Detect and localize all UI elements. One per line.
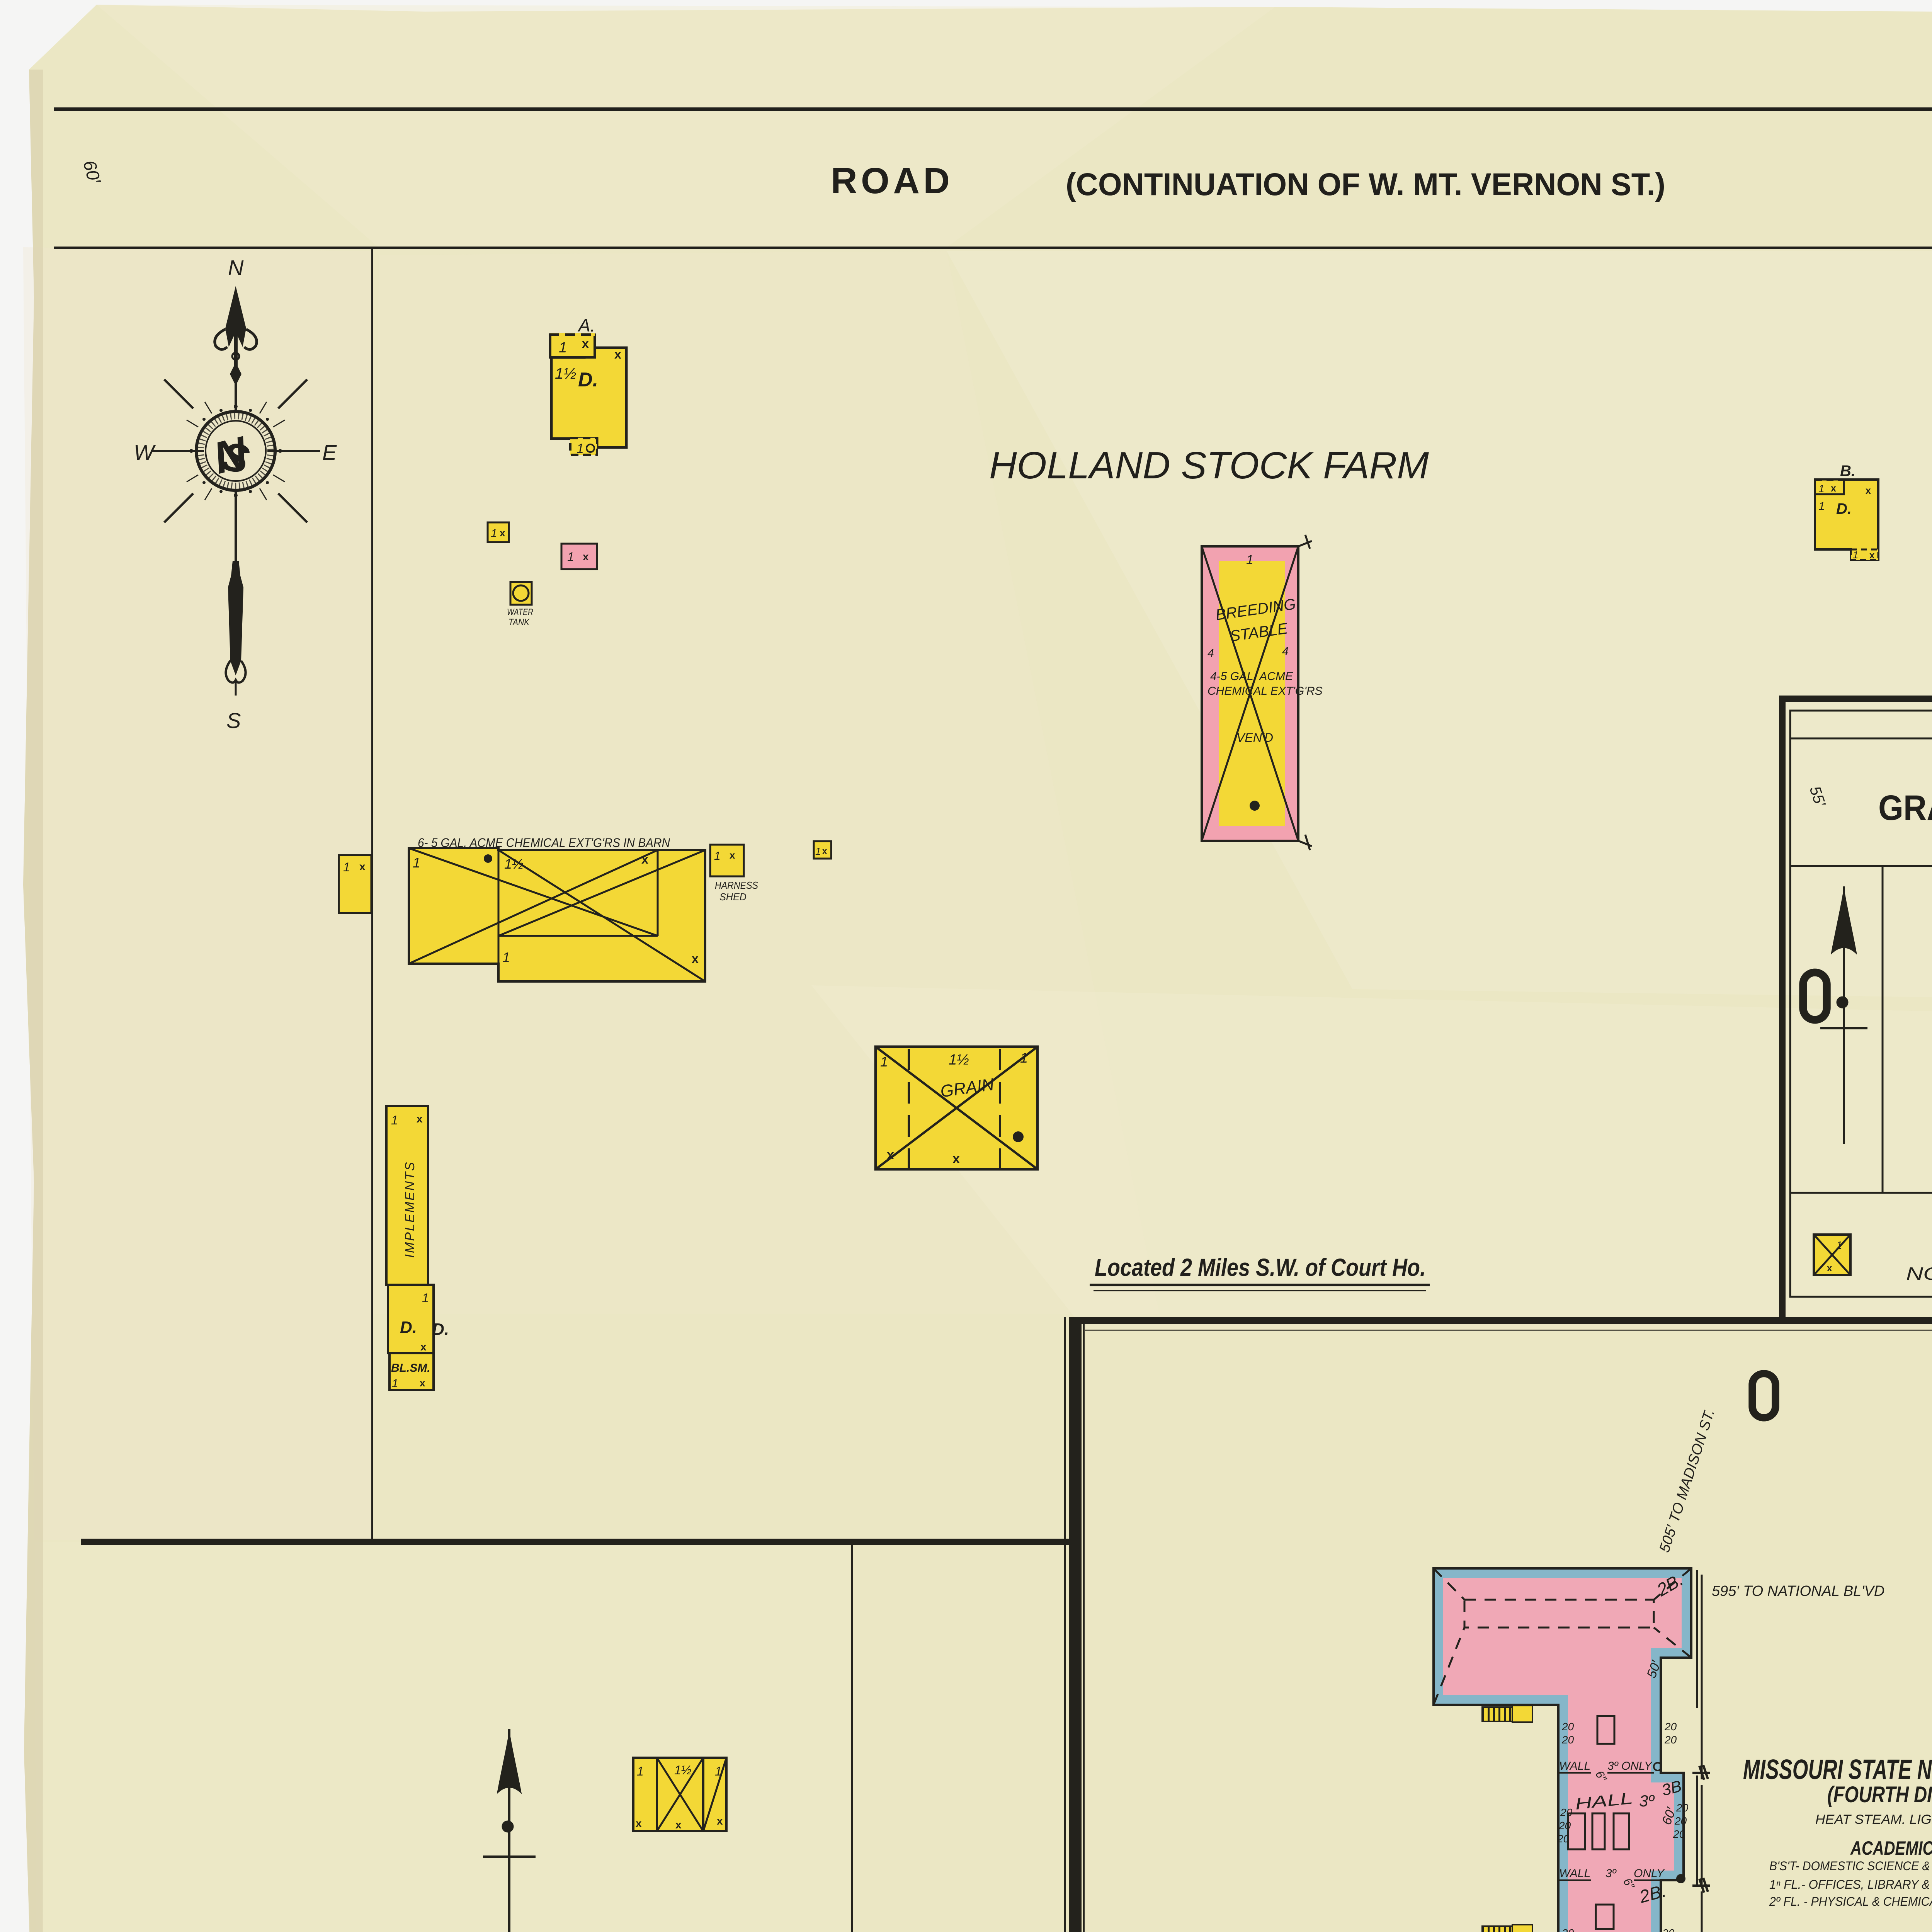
svg-text:x: x xyxy=(1869,550,1875,561)
svg-text:20: 20 xyxy=(1557,1833,1570,1845)
svg-text:BL.SM.: BL.SM. xyxy=(391,1362,430,1374)
svg-text:20: 20 xyxy=(1664,1734,1677,1746)
svg-text:A.: A. xyxy=(577,315,595,335)
svg-text:1: 1 xyxy=(577,441,584,456)
svg-text:x: x xyxy=(1866,485,1871,496)
svg-text:HARNESS: HARNESS xyxy=(715,879,759,891)
svg-text:1: 1 xyxy=(880,1054,888,1070)
svg-text:1: 1 xyxy=(637,1764,644,1778)
svg-text:GRAND: GRAND xyxy=(1878,788,1932,828)
svg-text:4: 4 xyxy=(1207,647,1214,660)
svg-text:3º: 3º xyxy=(1605,1867,1617,1880)
svg-text:E: E xyxy=(322,440,337,464)
svg-text:x: x xyxy=(887,1148,894,1162)
svg-text:1: 1 xyxy=(422,1291,429,1305)
svg-text:20: 20 xyxy=(1674,1815,1687,1827)
svg-text:CHEMICAL EXT'G'RS: CHEMICAL EXT'G'RS xyxy=(1207,685,1323,697)
svg-text:HOLLAND STOCK FARM: HOLLAND STOCK FARM xyxy=(989,444,1429,486)
svg-text:x: x xyxy=(717,1815,723,1827)
svg-text:1: 1 xyxy=(1836,1239,1842,1251)
svg-text:S: S xyxy=(226,708,241,733)
svg-text:4-5 GAL. ACME: 4-5 GAL. ACME xyxy=(1210,670,1293,683)
svg-text:1: 1 xyxy=(1818,500,1825,513)
svg-text:B'S'T- DOMESTIC SCIENCE & ARTS: B'S'T- DOMESTIC SCIENCE & ARTS. xyxy=(1769,1859,1932,1873)
svg-text:20: 20 xyxy=(1558,1820,1571,1832)
svg-text:TANK: TANK xyxy=(509,617,530,628)
svg-text:HEAT STEAM. LIGHTS ELEC.: HEAT STEAM. LIGHTS ELEC. xyxy=(1815,1812,1932,1827)
svg-text:20: 20 xyxy=(1561,1721,1574,1733)
svg-text:1: 1 xyxy=(567,550,574,564)
svg-text:1: 1 xyxy=(714,850,721,862)
svg-text:3º: 3º xyxy=(1639,1792,1655,1810)
svg-text:1: 1 xyxy=(392,1377,398,1390)
svg-text:20: 20 xyxy=(1673,1828,1685,1840)
svg-text:x: x xyxy=(420,1377,425,1389)
svg-text:(FOURTH DISTRICT): (FOURTH DISTRICT) xyxy=(1827,1782,1932,1807)
svg-text:x: x xyxy=(952,1151,960,1166)
svg-text:W: W xyxy=(134,440,156,464)
svg-text:4: 4 xyxy=(1282,645,1289,658)
svg-text:x: x xyxy=(822,846,827,856)
svg-text:x: x xyxy=(583,551,589,563)
svg-text:D.: D. xyxy=(400,1318,417,1337)
svg-text:x: x xyxy=(359,861,366,872)
svg-text:NO EXPOSURE: NO EXPOSURE xyxy=(1906,1264,1932,1284)
svg-text:WATER: WATER xyxy=(507,607,533,617)
svg-text:1: 1 xyxy=(559,340,567,356)
svg-text:x: x xyxy=(692,952,699,966)
svg-text:1ⁿ FL.- OFFICES, LIBRARY & REC: 1ⁿ FL.- OFFICES, LIBRARY & RECITATION R'… xyxy=(1769,1878,1932,1891)
svg-text:1: 1 xyxy=(1818,483,1825,495)
svg-text:ACADEMIC HALL: ACADEMIC HALL xyxy=(1850,1837,1932,1859)
svg-text:20: 20 xyxy=(1560,1806,1573,1818)
svg-text:1: 1 xyxy=(815,845,821,857)
svg-text:1: 1 xyxy=(413,855,420,871)
svg-text:1½: 1½ xyxy=(674,1763,691,1777)
svg-text:x: x xyxy=(1827,1263,1832,1274)
svg-text:x: x xyxy=(582,337,589,350)
svg-text:x: x xyxy=(420,1341,427,1353)
svg-text:1: 1 xyxy=(1246,553,1253,567)
svg-text:VEN'D: VEN'D xyxy=(1236,731,1273,745)
svg-text:(CONTINUATION OF W. MT. VERNON: (CONTINUATION OF W. MT. VERNON ST.) xyxy=(1066,167,1665,202)
svg-text:1: 1 xyxy=(491,527,497,540)
svg-text:ROAD: ROAD xyxy=(831,160,961,201)
svg-text:x: x xyxy=(1831,483,1836,494)
svg-text:1: 1 xyxy=(1853,549,1858,561)
svg-text:1: 1 xyxy=(1020,1050,1028,1066)
svg-text:1½: 1½ xyxy=(504,856,524,872)
svg-text:1½: 1½ xyxy=(555,365,577,382)
svg-text:1: 1 xyxy=(391,1113,398,1127)
svg-text:2º FL. - PHYSICAL & CHEMICAL L: 2º FL. - PHYSICAL & CHEMICAL LABORATORIE… xyxy=(1769,1895,1932,1908)
svg-text:x: x xyxy=(675,1819,682,1831)
svg-text:20: 20 xyxy=(1664,1721,1677,1733)
svg-text:N: N xyxy=(228,255,244,280)
svg-text:x: x xyxy=(636,1817,642,1829)
svg-text:x: x xyxy=(614,347,621,361)
svg-text:MISSOURI STATE NORMAL SCHOOL: MISSOURI STATE NORMAL SCHOOL xyxy=(1743,1754,1932,1785)
svg-text:IMPLEMENTS: IMPLEMENTS xyxy=(403,1161,417,1258)
svg-text:x: x xyxy=(730,849,735,861)
svg-text:D.: D. xyxy=(1836,500,1852,517)
svg-text:D.: D. xyxy=(432,1320,449,1339)
svg-text:20: 20 xyxy=(1676,1802,1689,1814)
svg-text:3º ONLY: 3º ONLY xyxy=(1607,1760,1653,1772)
svg-text:1: 1 xyxy=(343,860,350,874)
svg-text:x: x xyxy=(500,527,505,539)
svg-text:B.: B. xyxy=(1840,463,1855,480)
svg-text:1: 1 xyxy=(715,1764,722,1778)
svg-text:1: 1 xyxy=(502,949,510,965)
svg-text:x: x xyxy=(641,852,648,866)
svg-text:20: 20 xyxy=(1561,1734,1574,1746)
svg-text:WALL: WALL xyxy=(1559,1867,1590,1880)
svg-text:D.: D. xyxy=(578,369,598,391)
svg-text:WALL: WALL xyxy=(1559,1760,1590,1772)
svg-text:1½: 1½ xyxy=(949,1052,969,1068)
svg-text:x: x xyxy=(417,1113,423,1125)
svg-text:ONLY: ONLY xyxy=(1634,1867,1665,1880)
svg-text:SHED: SHED xyxy=(719,891,747,903)
svg-text:Located 2 Miles S.W. of Court: Located 2 Miles S.W. of Court Ho. xyxy=(1095,1253,1426,1281)
svg-text:20: 20 xyxy=(1662,1927,1675,1932)
svg-text:20: 20 xyxy=(1561,1927,1574,1932)
svg-text:595′ TO NATIONAL BL'VD: 595′ TO NATIONAL BL'VD xyxy=(1712,1583,1884,1599)
